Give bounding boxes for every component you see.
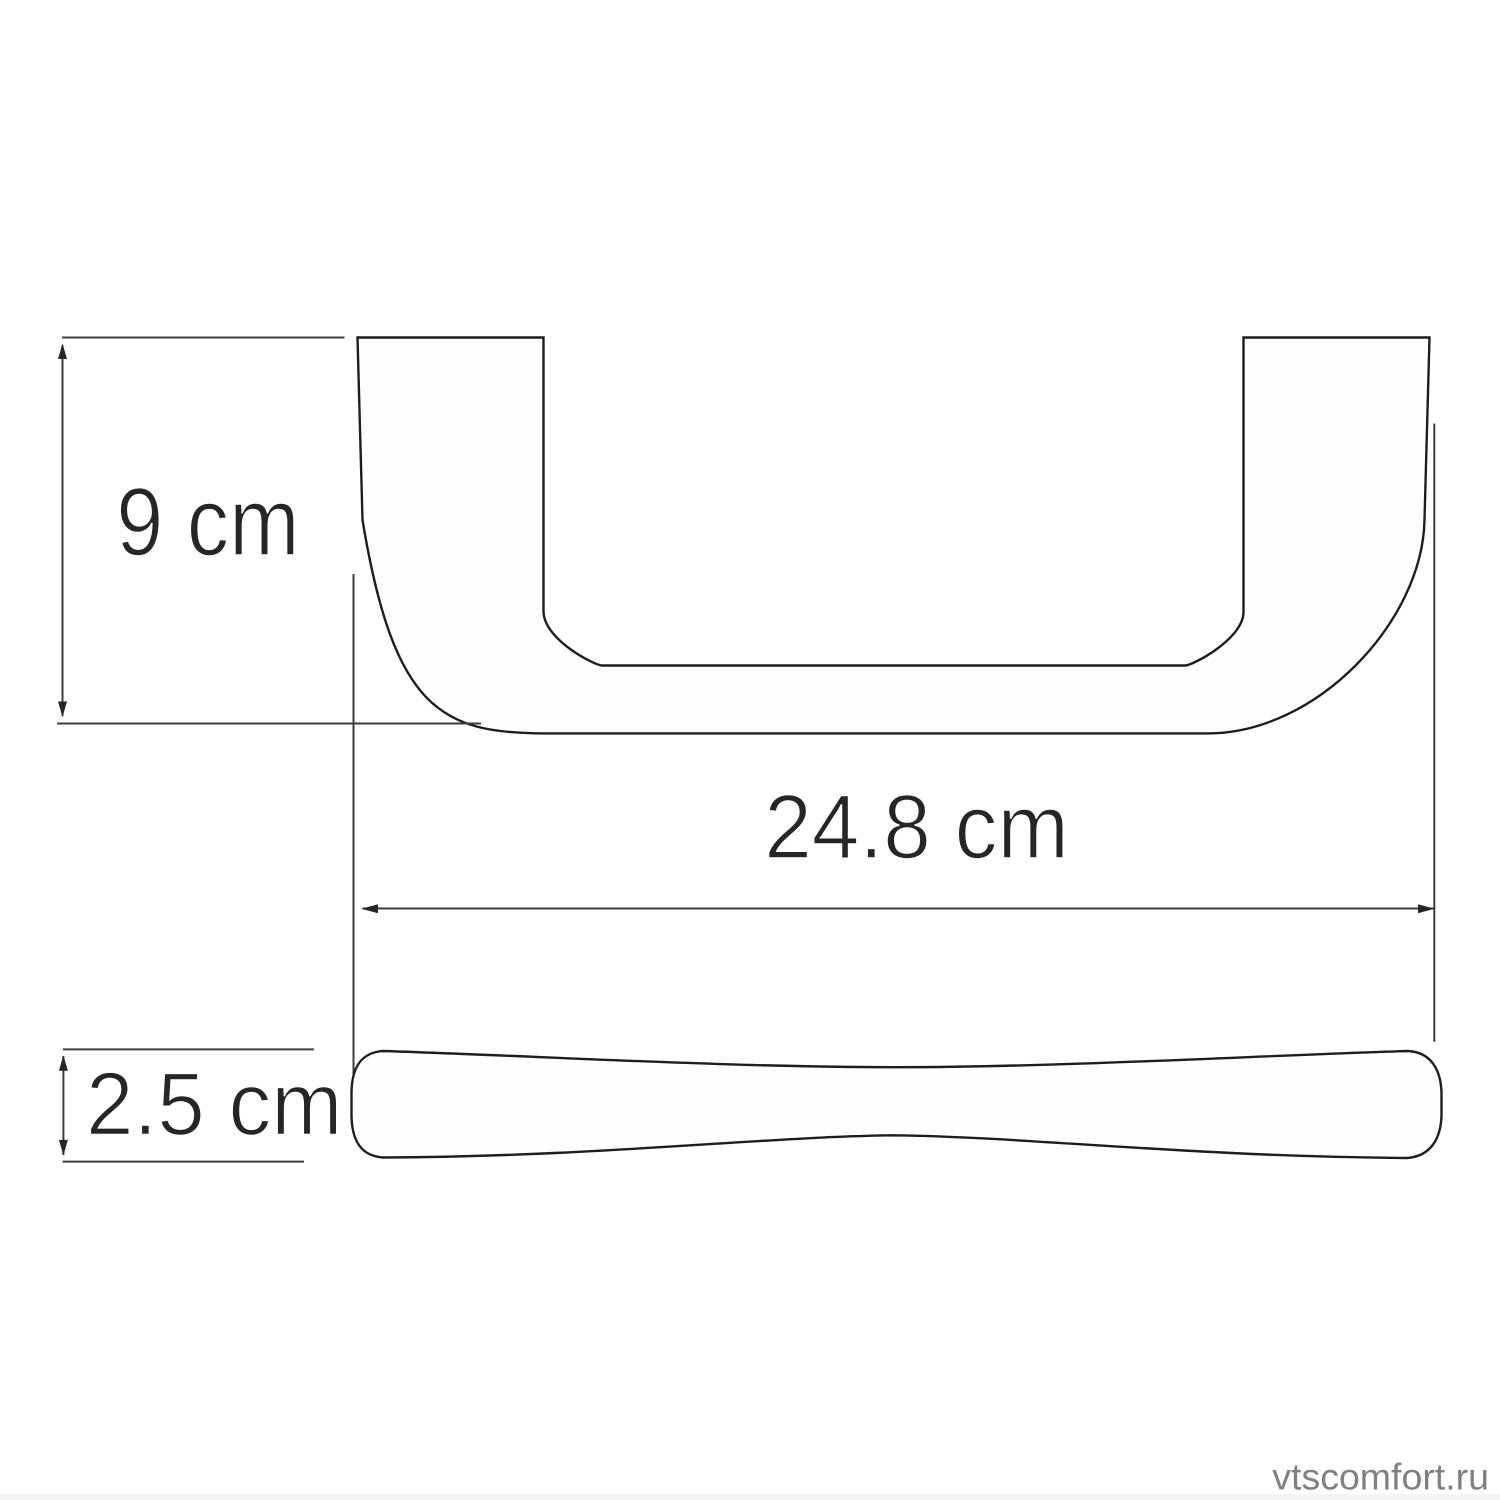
svg-text:vtscomfort.ru: vtscomfort.ru <box>1272 1456 1489 1498</box>
svg-text:2.5 cm: 2.5 cm <box>86 1054 342 1154</box>
svg-text:24.8 cm: 24.8 cm <box>764 777 1069 878</box>
svg-text:9 cm: 9 cm <box>116 469 299 576</box>
